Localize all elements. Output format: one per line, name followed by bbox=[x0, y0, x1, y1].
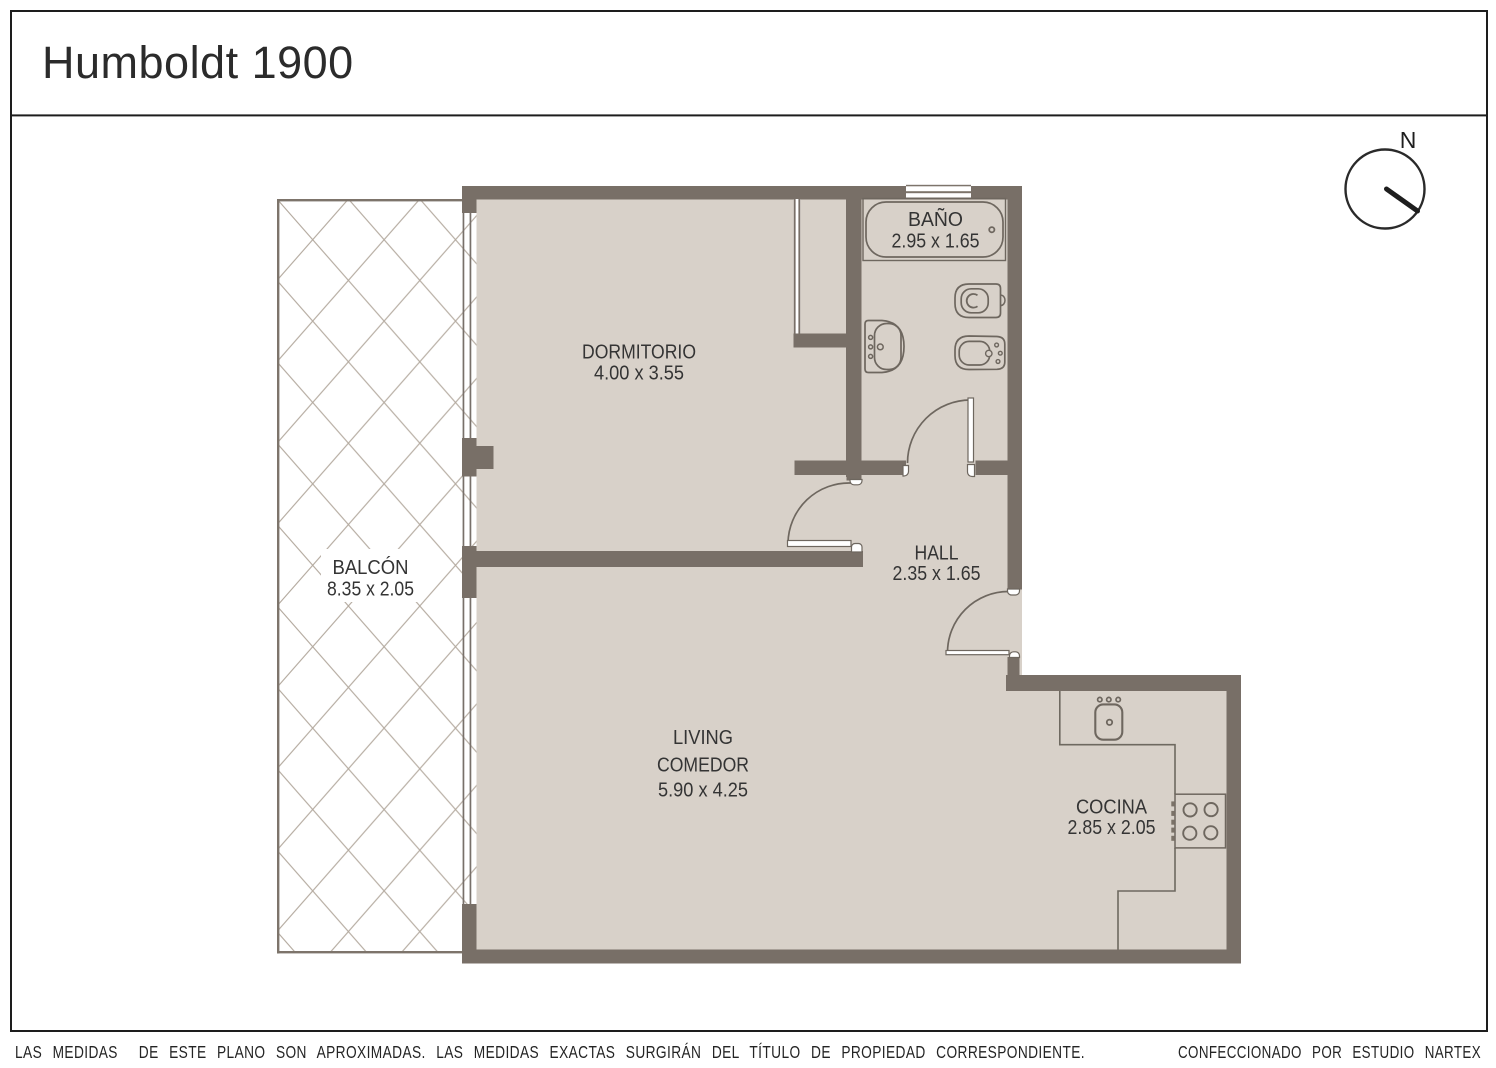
svg-text:2.35 x 1.65: 2.35 x 1.65 bbox=[893, 562, 981, 585]
svg-text:COMEDOR: COMEDOR bbox=[657, 754, 749, 777]
svg-text:LIVING: LIVING bbox=[673, 726, 733, 749]
svg-text:N: N bbox=[1400, 127, 1417, 153]
svg-text:8.35 x 2.05: 8.35 x 2.05 bbox=[327, 578, 414, 601]
svg-text:2.95 x 1.65: 2.95 x 1.65 bbox=[892, 230, 980, 253]
svg-text:4.00 x 3.55: 4.00 x 3.55 bbox=[594, 362, 684, 385]
svg-text:2.85 x 2.05: 2.85 x 2.05 bbox=[1068, 816, 1156, 839]
svg-text:BAÑO: BAÑO bbox=[908, 208, 963, 231]
svg-text:CONFECCIONADO POR ESTUDIO NART: CONFECCIONADO POR ESTUDIO NARTEX bbox=[1178, 1042, 1481, 1062]
svg-text:Humboldt 1900: Humboldt 1900 bbox=[42, 37, 354, 88]
svg-text:LAS MEDIDAS DE ESTE PLANO SON: LAS MEDIDAS DE ESTE PLANO SON APROXIMADA… bbox=[15, 1042, 1085, 1062]
svg-text:DORMITORIO: DORMITORIO bbox=[582, 341, 696, 364]
svg-text:BALCÓN: BALCÓN bbox=[333, 556, 409, 579]
svg-text:5.90 x 4.25: 5.90 x 4.25 bbox=[658, 779, 748, 802]
